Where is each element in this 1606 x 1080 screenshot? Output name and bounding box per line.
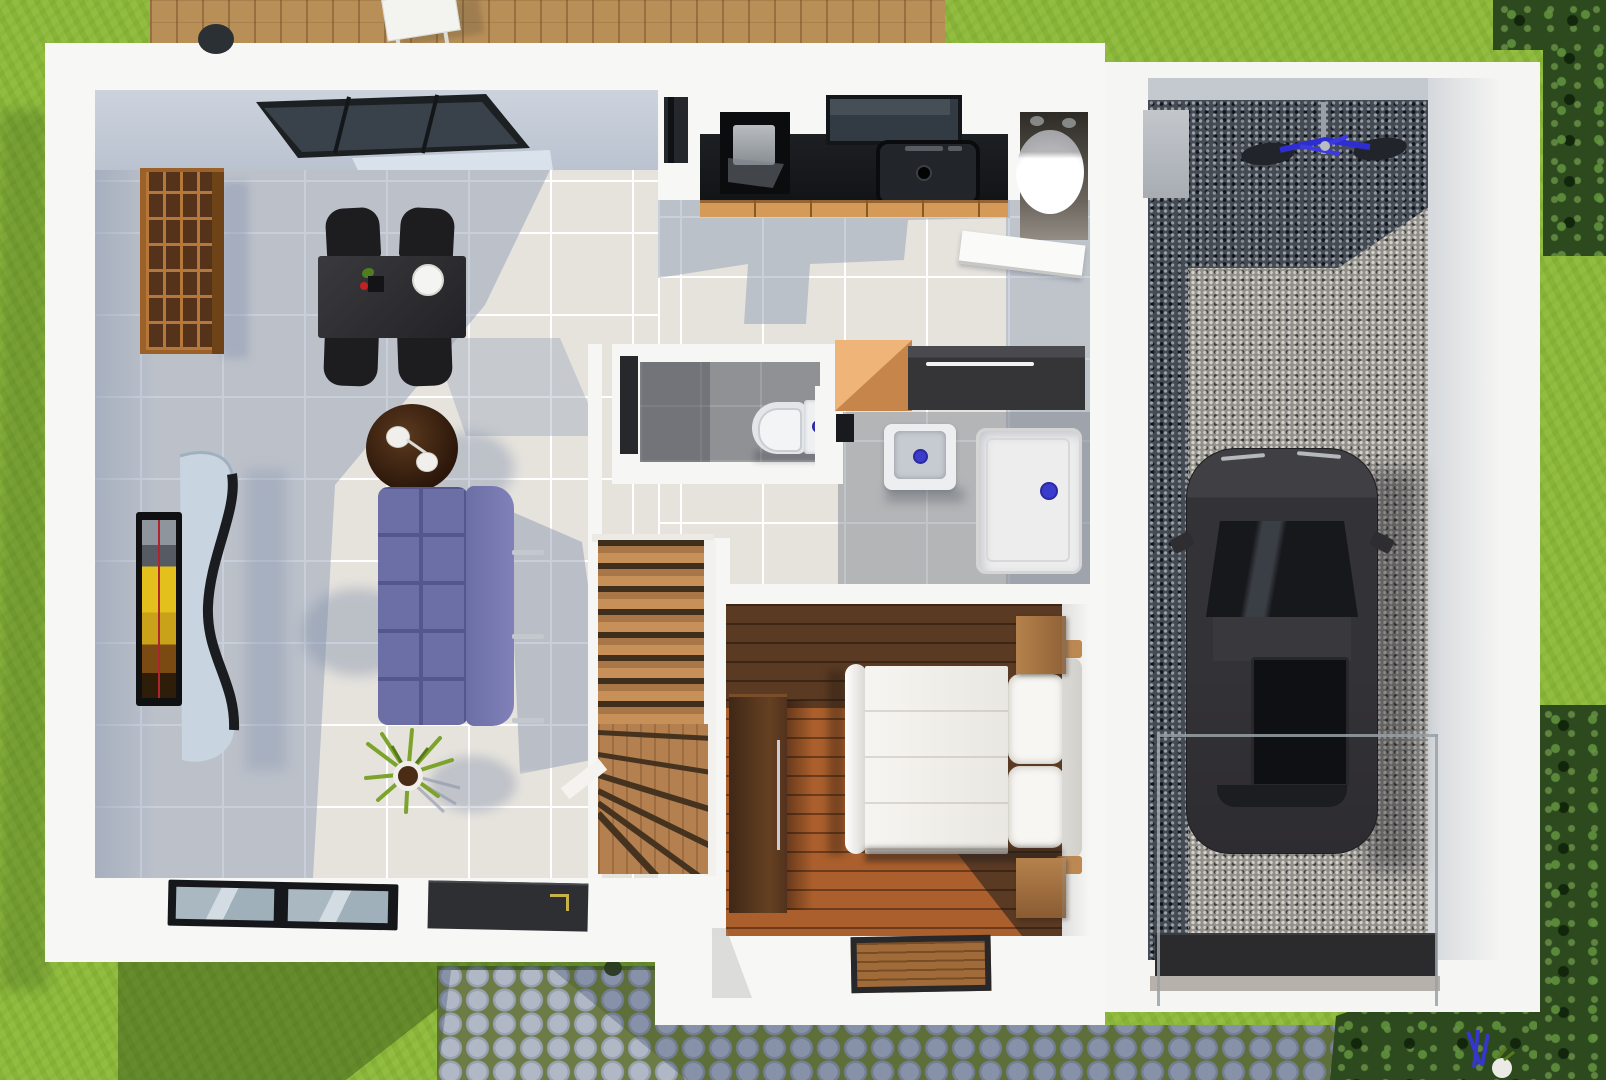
- wooden-deck: [150, 0, 945, 45]
- sofa-leg: [512, 634, 544, 639]
- coffee-cup: [386, 426, 410, 448]
- kitchen-wall-slot-bar: [668, 97, 674, 163]
- dinner-plate: [412, 264, 444, 296]
- potted-plant: [352, 726, 464, 818]
- deck-stool: [198, 24, 234, 54]
- garage-top-wall-face: [1148, 78, 1428, 102]
- lawn-shadow-left: [0, 110, 48, 990]
- bookshelf-cubbies: [146, 172, 212, 350]
- hedge-right-upper: [1543, 38, 1606, 256]
- bookshelf-side-face: [212, 172, 224, 354]
- glass-partition-frame: [1435, 734, 1438, 1006]
- glass-pane: [176, 887, 275, 921]
- shower-drain: [1040, 482, 1058, 500]
- ceiling-spot: [1062, 118, 1076, 128]
- nightstand: [1016, 616, 1066, 674]
- sink-drain: [916, 165, 932, 181]
- pillow: [1008, 766, 1064, 848]
- floor-glass-panel: [168, 880, 399, 931]
- doormat-logo: [550, 894, 569, 911]
- duvet-creases: [865, 666, 1008, 854]
- stair-treads: [598, 540, 708, 724]
- dining-chair: [397, 331, 453, 387]
- ceiling-spot: [1030, 116, 1044, 126]
- garage-threshold: [1150, 976, 1440, 991]
- wardrobe-handle: [777, 740, 780, 850]
- wc-door-slot: [620, 356, 638, 454]
- winder-edge: [598, 772, 708, 816]
- winder-edge: [598, 752, 708, 776]
- sofa-seat-cushions: [378, 487, 468, 725]
- bathroom-sideboard: [908, 346, 1085, 410]
- kitchen-base-cabinets: [700, 200, 1008, 217]
- coffee-cup: [416, 452, 438, 472]
- garden-tool-handles: [1468, 1030, 1488, 1068]
- car-windshield-reflection: [1206, 521, 1358, 617]
- sideboard-handle: [926, 362, 1034, 366]
- pillow: [1008, 674, 1064, 764]
- round-side-table: [366, 404, 458, 492]
- wc-floor-shadow: [640, 362, 710, 462]
- glass-partition-frame: [1157, 734, 1438, 737]
- dining-chair: [325, 207, 382, 262]
- bike-wheel: [1352, 134, 1409, 163]
- faucet-handle: [948, 146, 962, 151]
- faucet: [905, 146, 943, 151]
- wardrobe-shadow: [787, 700, 813, 910]
- car-sunroof: [1251, 657, 1349, 787]
- bed-shadow: [828, 670, 845, 855]
- car-rear-window: [1217, 785, 1347, 807]
- dining-chair: [323, 331, 379, 387]
- garden-pot: [1492, 1058, 1512, 1078]
- washbasin-shadow: [886, 488, 964, 502]
- tv-stand: [176, 446, 248, 770]
- tv-screen-detail: [158, 520, 160, 698]
- car-roof: [1213, 617, 1351, 661]
- glass-partition-frame: [1157, 734, 1160, 1006]
- water-heater-shading: [1016, 130, 1084, 214]
- garage-storage-box: [1143, 110, 1189, 198]
- garage-right-wall-face: [1428, 78, 1540, 960]
- stair-winders: [598, 724, 708, 874]
- car: [1186, 448, 1378, 854]
- skylight-window: [256, 100, 522, 152]
- shower-tray-inner-edge: [986, 438, 1070, 562]
- toilet-seat: [758, 408, 802, 452]
- car-hood-trim: [1221, 453, 1265, 461]
- dining-table: [318, 256, 466, 338]
- glass-pane: [288, 889, 389, 923]
- bike-wheel: [1240, 140, 1296, 168]
- kitchen-window-reflection: [830, 99, 950, 115]
- bed-footboard: [845, 664, 867, 854]
- sofa-leg: [512, 550, 544, 555]
- bedroom-wall-shadow: [1062, 604, 1090, 936]
- table-plant-flower: [360, 282, 368, 290]
- floor-plan-scene: [0, 0, 1606, 1080]
- bicycle: [1228, 100, 1424, 184]
- cooking-pot: [733, 125, 775, 165]
- car-hood-trim: [1297, 451, 1341, 459]
- winder-edge: [598, 730, 708, 741]
- sofa-leg: [512, 718, 544, 723]
- wall-bedroom-top: [655, 584, 1090, 606]
- plant-soil: [398, 766, 418, 786]
- sofa-backrest: [466, 486, 514, 726]
- table-vase: [368, 276, 384, 292]
- bike-pedal: [1320, 141, 1330, 151]
- washbasin-drain: [913, 449, 928, 464]
- bathroom-door-gap: [836, 414, 854, 442]
- bedroom-doormat: [851, 935, 992, 993]
- hedge-right-lower: [1537, 705, 1606, 1080]
- garage-door-plate: [1155, 933, 1437, 979]
- nightstand: [1016, 858, 1066, 918]
- garden-tools-blue: [1458, 1024, 1528, 1080]
- dining-chair: [399, 207, 456, 262]
